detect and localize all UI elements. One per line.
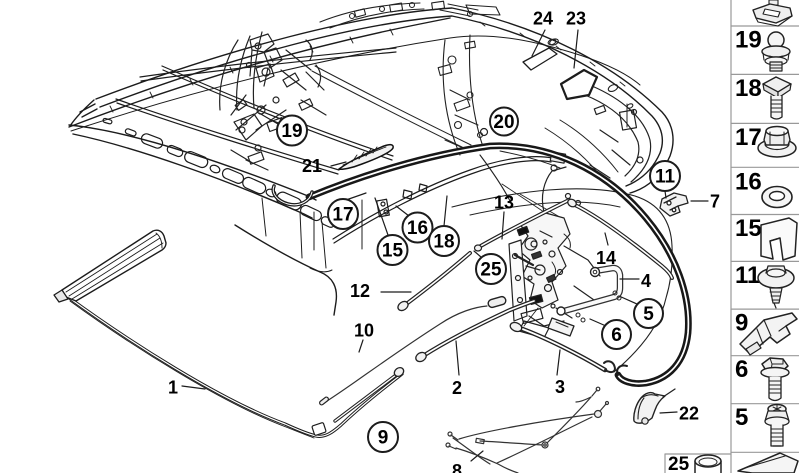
svg-text:6: 6 bbox=[611, 325, 622, 346]
svg-text:10: 10 bbox=[354, 321, 374, 341]
svg-text:7: 7 bbox=[710, 192, 720, 212]
svg-text:19: 19 bbox=[281, 121, 302, 142]
svg-text:23: 23 bbox=[566, 9, 586, 29]
svg-text:11: 11 bbox=[735, 262, 760, 289]
svg-text:17: 17 bbox=[332, 205, 353, 226]
svg-text:21: 21 bbox=[302, 156, 322, 176]
svg-text:24: 24 bbox=[533, 9, 553, 29]
svg-text:25: 25 bbox=[668, 454, 690, 473]
svg-text:18: 18 bbox=[433, 232, 454, 253]
svg-text:8: 8 bbox=[452, 461, 462, 473]
svg-text:3: 3 bbox=[555, 377, 565, 397]
svg-text:9: 9 bbox=[735, 310, 748, 337]
svg-text:6: 6 bbox=[735, 356, 748, 383]
svg-text:15: 15 bbox=[735, 215, 762, 242]
svg-text:25: 25 bbox=[480, 260, 502, 281]
svg-text:20: 20 bbox=[493, 112, 514, 133]
svg-text:4: 4 bbox=[641, 271, 651, 291]
svg-text:5: 5 bbox=[735, 404, 748, 431]
svg-text:5: 5 bbox=[643, 304, 654, 325]
svg-text:12: 12 bbox=[350, 281, 370, 301]
svg-text:13: 13 bbox=[494, 193, 514, 213]
svg-text:11: 11 bbox=[655, 167, 676, 188]
svg-text:15: 15 bbox=[382, 241, 404, 262]
svg-text:16: 16 bbox=[735, 168, 762, 195]
svg-text:16: 16 bbox=[407, 218, 428, 239]
svg-text:14: 14 bbox=[596, 248, 616, 268]
svg-text:22: 22 bbox=[679, 404, 699, 424]
svg-text:19: 19 bbox=[735, 27, 762, 54]
svg-text:18: 18 bbox=[735, 75, 762, 102]
svg-text:9: 9 bbox=[378, 428, 389, 449]
svg-text:2: 2 bbox=[452, 378, 462, 398]
svg-text:1: 1 bbox=[168, 378, 178, 398]
